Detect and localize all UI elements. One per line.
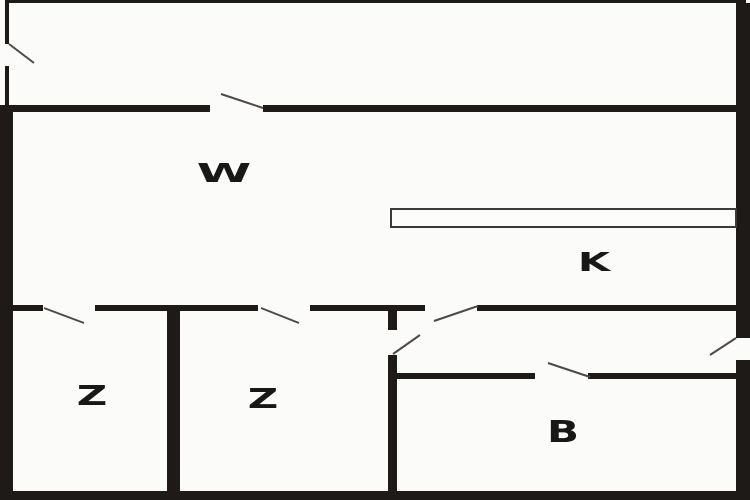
- door-swing-hall-to-k: [434, 306, 478, 321]
- b-room-top-wall-left: [397, 373, 535, 379]
- terrace-left-wall-upper: [5, 0, 9, 44]
- room-label-w: W: [197, 161, 252, 187]
- bedroom-divider-wall: [167, 311, 180, 491]
- right-exterior-wall-lower: [736, 360, 750, 500]
- right-exterior-wall-upper: [736, 3, 750, 338]
- mid-wall-segment-1: [13, 305, 43, 311]
- left-exterior-wall: [0, 105, 13, 500]
- door-swing-z2: [261, 308, 299, 323]
- room-label-b: B: [547, 418, 579, 448]
- b-room-top-wall-right: [588, 373, 736, 379]
- bottom-exterior-wall: [0, 491, 750, 500]
- mid-wall-segment-4: [477, 305, 736, 311]
- terrace-top-wall: [5, 0, 746, 3]
- main-top-wall-right: [263, 105, 750, 112]
- door-swing-z2-to-hall: [393, 335, 420, 354]
- door-swing-terrace-to-w: [221, 94, 263, 108]
- room-label-z2: Z: [248, 385, 278, 413]
- hall-left-wall-upper: [388, 305, 397, 330]
- door-swing-entrance: [710, 338, 736, 355]
- door-swing-terrace: [9, 44, 34, 63]
- terrace-left-wall-lower: [5, 66, 9, 106]
- door-swings-layer: [0, 0, 750, 500]
- door-swing-b: [548, 363, 590, 377]
- door-swing-z1: [44, 308, 84, 323]
- room-label-z1: Z: [77, 382, 107, 410]
- kitchen-counter: [390, 208, 737, 228]
- main-top-wall-left: [0, 105, 210, 112]
- hall-left-wall-lower: [388, 355, 397, 491]
- room-label-k: K: [578, 250, 610, 276]
- floor-plan: W K Z Z B: [0, 0, 750, 500]
- mid-wall-segment-3: [310, 305, 425, 311]
